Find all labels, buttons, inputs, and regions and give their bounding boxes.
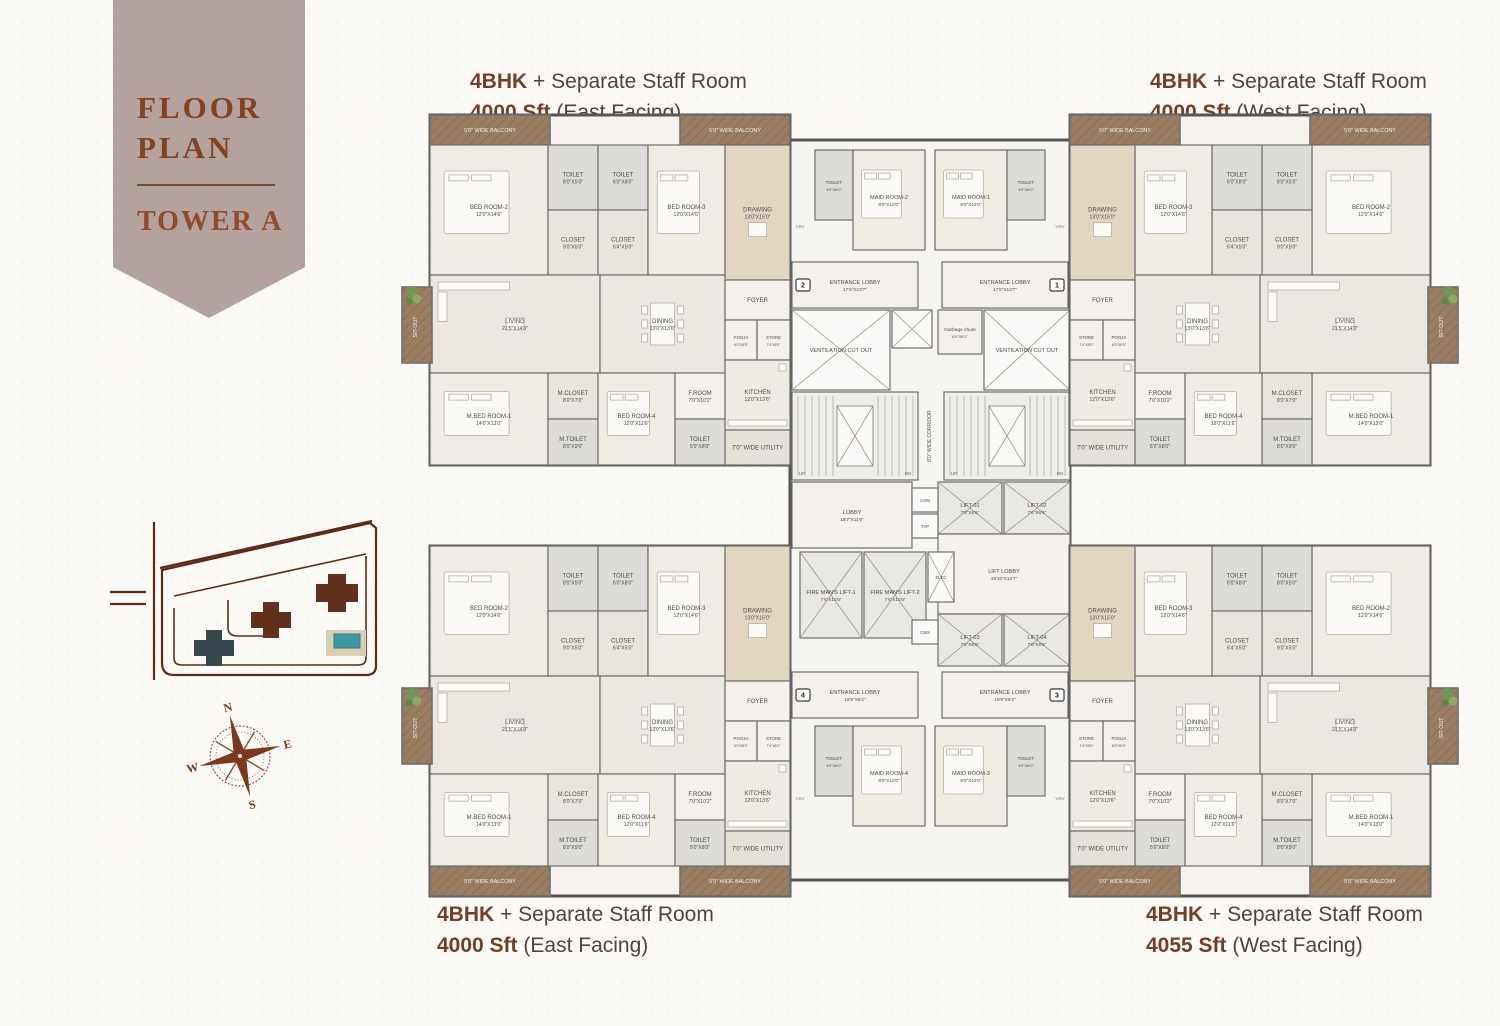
room-tl-m-toilet: M.TOILET8'0"X9'0" bbox=[548, 419, 598, 465]
unit-facing: (East Facing) bbox=[523, 934, 648, 957]
room-bl-balcony-top-b: 5'0" WIDE BALCONY bbox=[680, 866, 790, 896]
svg-text:5'0" WIDE BALCONY: 5'0" WIDE BALCONY bbox=[709, 879, 761, 885]
tower-c-footprint bbox=[316, 574, 358, 612]
svg-text:POOJA: POOJA bbox=[1112, 736, 1127, 741]
svg-text:M.CLOSET: M.CLOSET bbox=[1272, 792, 1303, 798]
svg-text:TOILET: TOILET bbox=[1018, 180, 1035, 186]
svg-text:BED ROOM-2: BED ROOM-2 bbox=[470, 606, 509, 612]
core-room-cws-shaft: CWS bbox=[912, 620, 938, 644]
svg-text:TOILET: TOILET bbox=[613, 172, 634, 178]
unit-desc: + Separate Staff Room bbox=[1213, 70, 1427, 93]
site-map bbox=[98, 508, 398, 698]
svg-text:6'4"X5'0": 6'4"X5'0" bbox=[613, 645, 633, 651]
room-tr-utility: 7'0" WIDE UTILITY bbox=[1070, 430, 1135, 465]
svg-text:5'0" WIDE BALCONY: 5'0" WIDE BALCONY bbox=[1099, 128, 1151, 134]
svg-text:MAID ROOM-3: MAID ROOM-3 bbox=[952, 771, 990, 777]
ribbon-title-line1: FLOOR bbox=[137, 88, 305, 128]
room-bl-drawing: DRAWING13'0"X15'0" bbox=[725, 546, 790, 681]
svg-text:LIFT-03: LIFT-03 bbox=[960, 635, 979, 641]
svg-text:4: 4 bbox=[801, 693, 805, 700]
core-room-lift-04: LIFT-047'6"X6'6" bbox=[1004, 614, 1070, 666]
svg-text:LIVING: LIVING bbox=[505, 720, 525, 726]
svg-text:12'0"X14'6": 12'0"X14'6" bbox=[1161, 613, 1187, 619]
room-tr-foyer: FOYER bbox=[1070, 280, 1135, 320]
core-room-stair-l: UPDN bbox=[792, 392, 918, 480]
svg-text:6'0"X8'0": 6'0"X8'0" bbox=[613, 179, 633, 185]
svg-text:LIFT-02: LIFT-02 bbox=[1027, 503, 1046, 509]
svg-text:18'7"X11'6": 18'7"X11'6" bbox=[840, 517, 864, 522]
room-tr-bed-room-4: BED ROOM-412'0"X11'6" bbox=[1185, 373, 1262, 465]
room-tr-m-bed-room-1: M.BED ROOM-114'0"X13'0" bbox=[1312, 373, 1430, 465]
room-tl-toilet-3: TOILET6'0"X8'0" bbox=[598, 145, 648, 210]
room-bl-balcony-top-a: 5'0" WIDE BALCONY bbox=[430, 866, 550, 896]
svg-text:13'0"X13'6": 13'0"X13'6" bbox=[650, 326, 676, 332]
room-tl-drawing: DRAWING13'0"X15'0" bbox=[725, 145, 790, 280]
svg-text:BED ROOM-4: BED ROOM-4 bbox=[1204, 815, 1243, 821]
svg-text:8'0"X12'0": 8'0"X12'0" bbox=[960, 778, 982, 783]
core-room-elec-shaft: ELEC bbox=[928, 552, 954, 602]
room-tl-bed-room-2: BED ROOM-212'0"X14'6" bbox=[430, 145, 548, 275]
core-room-maid-room-3: MAID ROOM-38'0"X12'0" bbox=[935, 726, 1007, 826]
svg-text:SIT-OUT: SIT-OUT bbox=[1439, 316, 1445, 338]
svg-text:M.TOILET: M.TOILET bbox=[559, 437, 587, 443]
svg-text:FOYER: FOYER bbox=[747, 699, 768, 705]
svg-text:M.BED ROOM-1: M.BED ROOM-1 bbox=[467, 815, 512, 821]
svg-text:8'0"X5'0": 8'0"X5'0" bbox=[1277, 179, 1297, 185]
svg-text:7'0" WIDE UTILITY: 7'0" WIDE UTILITY bbox=[1077, 446, 1128, 452]
svg-text:BED ROOM-4: BED ROOM-4 bbox=[617, 414, 656, 420]
svg-text:CLOSET: CLOSET bbox=[561, 237, 585, 243]
svg-text:14'0"X13'0": 14'0"X13'0" bbox=[1358, 822, 1384, 828]
core-room-tap-shaft: TAP bbox=[912, 514, 938, 538]
svg-text:ELEC: ELEC bbox=[936, 575, 947, 580]
svg-text:SIT-OUT: SIT-OUT bbox=[413, 717, 419, 739]
svg-text:CLOSET: CLOSET bbox=[611, 638, 635, 644]
svg-text:17'6"X13'7": 17'6"X13'7" bbox=[843, 287, 867, 292]
svg-text:12'0"X14'6": 12'0"X14'6" bbox=[476, 613, 502, 619]
svg-text:ENTRANCE LOBBY: ENTRANCE LOBBY bbox=[980, 280, 1031, 286]
compass-north-label: N bbox=[222, 700, 234, 716]
room-br-bed-room-4: BED ROOM-412'0"X11'6" bbox=[1185, 774, 1262, 866]
svg-text:8'0"X12'0": 8'0"X12'0" bbox=[878, 778, 900, 783]
room-tr-closet-3: CLOSET6'4"X5'0" bbox=[1212, 210, 1262, 275]
room-bl-toilet-2: TOILET8'0"X5'0" bbox=[548, 546, 598, 611]
svg-text:DINING: DINING bbox=[1187, 720, 1208, 726]
svg-text:21'5"X14'0": 21'5"X14'0" bbox=[502, 727, 528, 733]
central-core: TOILET4'0"X6'0"MAID ROOM-28'0"X12'0"MAID… bbox=[790, 140, 1070, 880]
svg-text:TOILET: TOILET bbox=[826, 180, 843, 186]
core-room-entrance-lobby-1: ENTRANCE LOBBY17'6"X13'7"1 bbox=[942, 262, 1068, 308]
svg-text:5'0"X8'0": 5'0"X8'0" bbox=[690, 845, 710, 851]
svg-text:M.BED ROOM-1: M.BED ROOM-1 bbox=[1349, 815, 1394, 821]
svg-text:9'0"X5'0": 9'0"X5'0" bbox=[563, 645, 583, 651]
core-room-shaft-a bbox=[892, 310, 932, 348]
unit-area: 4055 Sft bbox=[1146, 934, 1227, 957]
svg-text:VSV: VSV bbox=[1055, 224, 1065, 229]
svg-text:M.TOILET: M.TOILET bbox=[1273, 437, 1301, 443]
svg-text:8'0"X7'0": 8'0"X7'0" bbox=[1277, 799, 1297, 805]
svg-text:4'0"X6'0": 4'0"X6'0" bbox=[826, 187, 842, 192]
unit-area: 4000 Sft bbox=[437, 934, 518, 957]
svg-text:7'6"X6'6": 7'6"X6'6" bbox=[961, 642, 980, 647]
svg-text:12'0"X14'6": 12'0"X14'6" bbox=[1358, 613, 1384, 619]
svg-text:TOILET: TOILET bbox=[826, 756, 843, 762]
room-tr-balcony-top-a: 5'0" WIDE BALCONY bbox=[1310, 115, 1430, 145]
room-tl-store: STORE7'4"X5'0" bbox=[757, 320, 790, 360]
room-br-utility: 7'0" WIDE UTILITY bbox=[1070, 831, 1135, 866]
core-room-maid-toilet-1: TOILET4'0"X6'0" bbox=[1007, 150, 1045, 220]
room-br-bed-room-3: BED ROOM-312'0"X14'6" bbox=[1135, 546, 1212, 676]
svg-text:12'0"X14'6": 12'0"X14'6" bbox=[476, 212, 502, 218]
room-tr-pooja: POOJA6'0"X5'0" bbox=[1103, 320, 1135, 360]
svg-text:TOILET: TOILET bbox=[1150, 437, 1171, 443]
room-bl-living: LIVING21'5"X14'0" bbox=[430, 676, 600, 774]
room-br-toilet-3: TOILET6'0"X8'0" bbox=[1212, 546, 1262, 611]
svg-text:14'0"X13'0": 14'0"X13'0" bbox=[476, 822, 502, 828]
svg-text:VENTILATION CUT OUT: VENTILATION CUT OUT bbox=[996, 348, 1059, 354]
svg-text:8'0"X7'0": 8'0"X7'0" bbox=[563, 398, 583, 404]
svg-text:12'0"X11'6": 12'0"X11'6" bbox=[1211, 822, 1237, 828]
room-br-m-closet: M.CLOSET8'0"X7'0" bbox=[1262, 774, 1312, 820]
unit-facing: (West Facing) bbox=[1232, 934, 1362, 957]
svg-text:8'0"X5'0": 8'0"X5'0" bbox=[1277, 580, 1297, 586]
room-bl-m-toilet: M.TOILET8'0"X9'0" bbox=[548, 820, 598, 866]
room-tl-dining: DINING13'0"X13'6" bbox=[600, 275, 725, 373]
svg-text:19'6"X9'2": 19'6"X9'2" bbox=[994, 697, 1016, 702]
room-tl-bed-room-4: BED ROOM-412'0"X11'6" bbox=[598, 373, 675, 465]
room-bl-closet-2: CLOSET9'0"X5'0" bbox=[548, 611, 598, 676]
svg-text:SIT-OUT: SIT-OUT bbox=[413, 316, 419, 338]
apartment-tr: 5'0" WIDE BALCONY5'0" WIDE BALCONYBED RO… bbox=[1070, 115, 1458, 465]
room-br-store: STORE7'4"X5'0" bbox=[1070, 721, 1103, 761]
svg-text:CLOSET: CLOSET bbox=[561, 638, 585, 644]
room-br-f-room: F.ROOM7'0"X10'2" bbox=[1135, 774, 1185, 820]
room-bl-f-room: F.ROOM7'0"X10'2" bbox=[675, 774, 725, 820]
unit-line1: 4BHK + Separate Staff Room bbox=[470, 66, 747, 97]
svg-text:TOILET: TOILET bbox=[1277, 573, 1298, 579]
compass-rose: N E S W bbox=[184, 698, 296, 814]
ribbon-title-line2: PLAN bbox=[137, 128, 305, 168]
core-room-lift-01: LIFT-017'6"X6'6" bbox=[938, 482, 1002, 534]
svg-text:7'0" WIDE UTILITY: 7'0" WIDE UTILITY bbox=[1077, 847, 1128, 853]
svg-text:F.ROOM: F.ROOM bbox=[688, 792, 711, 798]
room-br-toilet-4: TOILET5'0"X8'0" bbox=[1135, 820, 1185, 866]
svg-text:CLOSET: CLOSET bbox=[611, 237, 635, 243]
svg-text:TOILET: TOILET bbox=[1150, 838, 1171, 844]
room-tl-m-closet: M.CLOSET8'0"X7'0" bbox=[548, 373, 598, 419]
ribbon-subtitle: TOWER A bbox=[137, 206, 305, 238]
compass-south-label: S bbox=[247, 797, 257, 812]
svg-text:7'4"X5'0": 7'4"X5'0" bbox=[767, 744, 782, 748]
core-room-vent-l: VENTILATION CUT OUT bbox=[792, 310, 890, 390]
svg-text:6'0"X5'0": 6'0"X5'0" bbox=[734, 343, 749, 347]
room-br-balcony-top-a: 5'0" WIDE BALCONY bbox=[1310, 866, 1430, 896]
svg-text:BED ROOM-2: BED ROOM-2 bbox=[1352, 606, 1391, 612]
svg-text:CLOSET: CLOSET bbox=[1225, 237, 1249, 243]
room-bl-kitchen: KITCHEN12'0"X13'6" bbox=[725, 761, 790, 831]
ribbon-divider bbox=[137, 184, 275, 186]
svg-text:BED ROOM-3: BED ROOM-3 bbox=[667, 205, 706, 211]
svg-text:7'0"X10'2": 7'0"X10'2" bbox=[688, 398, 711, 404]
room-tl-utility: 7'0" WIDE UTILITY bbox=[725, 430, 790, 465]
svg-text:M.BED ROOM-1: M.BED ROOM-1 bbox=[1349, 414, 1394, 420]
apartment-bl: 5'0" WIDE BALCONY5'0" WIDE BALCONYBED RO… bbox=[402, 546, 790, 896]
svg-text:SIT-OUT: SIT-OUT bbox=[1439, 717, 1445, 739]
svg-text:LIVING: LIVING bbox=[1335, 319, 1355, 325]
room-br-pooja: POOJA6'0"X5'0" bbox=[1103, 721, 1135, 761]
room-bl-store: STORE7'4"X5'0" bbox=[757, 721, 790, 761]
room-bl-toilet-3: TOILET6'0"X8'0" bbox=[598, 546, 648, 611]
svg-text:UP: UP bbox=[799, 471, 805, 476]
apartment-tl: 5'0" WIDE BALCONY5'0" WIDE BALCONYBED RO… bbox=[402, 115, 790, 465]
svg-text:LIFT-04: LIFT-04 bbox=[1027, 635, 1046, 641]
svg-text:7'0" WIDE UTILITY: 7'0" WIDE UTILITY bbox=[732, 847, 783, 853]
room-br-closet-3: CLOSET6'4"X5'0" bbox=[1212, 611, 1262, 676]
svg-text:TOILET: TOILET bbox=[690, 437, 711, 443]
room-tl-closet-3: CLOSET6'4"X5'0" bbox=[598, 210, 648, 275]
svg-text:DINING: DINING bbox=[1187, 319, 1208, 325]
svg-text:12'0"X13'6": 12'0"X13'6" bbox=[745, 798, 771, 804]
room-tr-living: LIVING21'5"X14'0" bbox=[1260, 275, 1430, 373]
svg-text:BED ROOM-3: BED ROOM-3 bbox=[1154, 205, 1193, 211]
unit-line1: 4BHK + Separate Staff Room bbox=[1150, 66, 1427, 97]
svg-text:POOJA: POOJA bbox=[734, 736, 749, 741]
room-bl-bed-room-4: BED ROOM-412'0"X11'6" bbox=[598, 774, 675, 866]
core-room-maid-toilet-4: TOILET4'0"X6'0" bbox=[815, 726, 853, 796]
svg-text:7'6"X11'6": 7'6"X11'6" bbox=[821, 597, 842, 602]
room-tr-balcony-top-b: 5'0" WIDE BALCONY bbox=[1070, 115, 1180, 145]
svg-text:12'0"X11'6": 12'0"X11'6" bbox=[1211, 421, 1237, 427]
svg-text:5'0"X8'0": 5'0"X8'0" bbox=[1150, 444, 1170, 450]
title-ribbon: FLOOR PLAN TOWER A bbox=[113, 0, 305, 318]
svg-text:UP: UP bbox=[951, 471, 957, 476]
svg-text:8'0"X5'0": 8'0"X5'0" bbox=[563, 179, 583, 185]
svg-text:3: 3 bbox=[1055, 693, 1059, 700]
svg-text:COM: COM bbox=[920, 498, 930, 503]
svg-text:5'0" WIDE BALCONY: 5'0" WIDE BALCONY bbox=[1344, 128, 1396, 134]
core-room-maid-room-4: MAID ROOM-48'0"X12'0" bbox=[853, 726, 925, 826]
room-tl-bed-room-3: BED ROOM-312'0"X14'6" bbox=[648, 145, 725, 275]
svg-text:DRAWING: DRAWING bbox=[1088, 608, 1117, 614]
svg-text:12'0"X13'6": 12'0"X13'6" bbox=[745, 397, 771, 403]
svg-text:6'0"X6'1": 6'0"X6'1" bbox=[952, 334, 968, 339]
room-br-m-toilet: M.TOILET8'0"X9'0" bbox=[1262, 820, 1312, 866]
room-br-foyer: FOYER bbox=[1070, 681, 1135, 721]
room-tl-living: LIVING21'5"X14'0" bbox=[430, 275, 600, 373]
svg-text:6'4"X5'0": 6'4"X5'0" bbox=[613, 244, 633, 250]
svg-text:FOYER: FOYER bbox=[747, 298, 768, 304]
svg-text:KITCHEN: KITCHEN bbox=[1089, 390, 1115, 396]
floor-plan-drawing: TOILET4'0"X6'0"MAID ROOM-28'0"X12'0"MAID… bbox=[400, 100, 1460, 910]
svg-text:5'0" WIDE BALCONY: 5'0" WIDE BALCONY bbox=[464, 879, 516, 885]
svg-text:8'0"X5'0": 8'0"X5'0" bbox=[563, 580, 583, 586]
svg-text:VSV: VSV bbox=[1055, 796, 1065, 801]
svg-text:M.CLOSET: M.CLOSET bbox=[1272, 391, 1303, 397]
svg-text:MAID ROOM-1: MAID ROOM-1 bbox=[952, 195, 990, 201]
svg-text:12'0"X14'6": 12'0"X14'6" bbox=[674, 613, 700, 619]
svg-text:CLOSET: CLOSET bbox=[1275, 638, 1299, 644]
room-bl-m-bed-room-1: M.BED ROOM-114'0"X13'0" bbox=[430, 774, 548, 866]
svg-text:8'0"X9'0": 8'0"X9'0" bbox=[1277, 444, 1297, 450]
svg-text:8'0"X12'0": 8'0"X12'0" bbox=[960, 202, 982, 207]
svg-text:TOILET: TOILET bbox=[1227, 573, 1248, 579]
svg-text:M.CLOSET: M.CLOSET bbox=[558, 792, 589, 798]
svg-text:BED ROOM-4: BED ROOM-4 bbox=[617, 815, 656, 821]
svg-text:STORE: STORE bbox=[766, 335, 781, 340]
svg-text:19'6"X9'2": 19'6"X9'2" bbox=[844, 697, 866, 702]
svg-text:LIVING: LIVING bbox=[505, 319, 525, 325]
svg-text:13'0"X15'0": 13'0"X15'0" bbox=[745, 615, 771, 621]
core-room-lobby: LOBBY18'7"X11'6" bbox=[792, 482, 912, 548]
unit-desc: + Separate Staff Room bbox=[533, 70, 747, 93]
room-tr-m-closet: M.CLOSET8'0"X7'0" bbox=[1262, 373, 1312, 419]
room-bl-bed-room-3: BED ROOM-312'0"X14'6" bbox=[648, 546, 725, 676]
svg-text:DN: DN bbox=[1057, 471, 1064, 476]
svg-text:4'0"X6'0": 4'0"X6'0" bbox=[1018, 187, 1034, 192]
svg-text:TOILET: TOILET bbox=[1277, 172, 1298, 178]
svg-text:6'0"X8'0": 6'0"X8'0" bbox=[1227, 580, 1247, 586]
svg-text:TOILET: TOILET bbox=[690, 838, 711, 844]
svg-text:CWS: CWS bbox=[920, 630, 930, 635]
svg-text:KITCHEN: KITCHEN bbox=[744, 390, 770, 396]
svg-text:6'4"X5'0": 6'4"X5'0" bbox=[1227, 244, 1247, 250]
svg-text:13'0"X13'6": 13'0"X13'6" bbox=[1185, 727, 1211, 733]
svg-text:7'4"X5'0": 7'4"X5'0" bbox=[767, 343, 782, 347]
svg-text:7'4"X5'0": 7'4"X5'0" bbox=[1080, 744, 1095, 748]
room-br-kitchen: KITCHEN12'0"X13'6" bbox=[1070, 761, 1135, 831]
core-room-entrance-lobby-2: ENTRANCE LOBBY17'6"X13'7"2 bbox=[792, 262, 918, 308]
room-bl-pooja: POOJA6'0"X5'0" bbox=[725, 721, 757, 761]
svg-text:POOJA: POOJA bbox=[1112, 335, 1127, 340]
svg-text:12'0"X14'6": 12'0"X14'6" bbox=[1161, 212, 1187, 218]
svg-text:12'0"X14'6": 12'0"X14'6" bbox=[1358, 212, 1384, 218]
unit-type: 4BHK bbox=[1150, 70, 1207, 93]
svg-text:POOJA: POOJA bbox=[734, 335, 749, 340]
svg-text:STORE: STORE bbox=[766, 736, 781, 741]
svg-text:BED ROOM-3: BED ROOM-3 bbox=[1154, 606, 1193, 612]
svg-text:LOBBY: LOBBY bbox=[843, 510, 862, 516]
core-room-fire-mans-lift-1: FIRE MAN'S LIFT-17'6"X11'6" bbox=[800, 552, 862, 638]
svg-text:8'0"X7'0": 8'0"X7'0" bbox=[563, 799, 583, 805]
svg-text:9'0"X5'0": 9'0"X5'0" bbox=[1277, 645, 1297, 651]
svg-text:19'10"X12'7": 19'10"X12'7" bbox=[991, 576, 1018, 581]
svg-text:DINING: DINING bbox=[652, 720, 673, 726]
svg-text:MAID ROOM-4: MAID ROOM-4 bbox=[870, 771, 908, 777]
svg-text:M.TOILET: M.TOILET bbox=[559, 838, 587, 844]
room-tr-closet-2: CLOSET9'0"X5'0" bbox=[1262, 210, 1312, 275]
svg-text:CLOSET: CLOSET bbox=[1275, 237, 1299, 243]
svg-text:ENTRANCE LOBBY: ENTRANCE LOBBY bbox=[830, 690, 881, 696]
room-tl-f-room: F.ROOM7'0"X10'2" bbox=[675, 373, 725, 419]
core-room-stair-r: UPDN bbox=[944, 392, 1070, 480]
svg-text:7'6"X6'6": 7'6"X6'6" bbox=[961, 510, 980, 515]
svg-text:FIRE MAN'S LIFT-2: FIRE MAN'S LIFT-2 bbox=[870, 590, 919, 596]
svg-text:13'0"X15'0": 13'0"X15'0" bbox=[745, 214, 771, 220]
svg-text:TAP: TAP bbox=[921, 524, 929, 529]
room-tr-store: STORE7'4"X5'0" bbox=[1070, 320, 1103, 360]
svg-text:1: 1 bbox=[1055, 283, 1059, 290]
svg-text:8'0"X9'0": 8'0"X9'0" bbox=[563, 444, 583, 450]
svg-text:STORE: STORE bbox=[1079, 335, 1094, 340]
svg-text:CLOSET: CLOSET bbox=[1225, 638, 1249, 644]
svg-text:LIVING: LIVING bbox=[1335, 720, 1355, 726]
svg-text:FOYER: FOYER bbox=[1092, 699, 1113, 705]
svg-text:7'0"X10'2": 7'0"X10'2" bbox=[1148, 799, 1171, 805]
svg-text:8'0"X12'0": 8'0"X12'0" bbox=[878, 202, 900, 207]
svg-text:ENTRANCE LOBBY: ENTRANCE LOBBY bbox=[980, 690, 1031, 696]
svg-text:5'0"X8'0": 5'0"X8'0" bbox=[1150, 845, 1170, 851]
room-br-drawing: DRAWING13'0"X15'0" bbox=[1070, 546, 1135, 681]
svg-text:6'0"X8'0": 6'0"X8'0" bbox=[1227, 179, 1247, 185]
svg-text:13'0"X13'6": 13'0"X13'6" bbox=[1185, 326, 1211, 332]
svg-text:F.ROOM: F.ROOM bbox=[1148, 391, 1171, 397]
room-br-closet-2: CLOSET9'0"X5'0" bbox=[1262, 611, 1312, 676]
svg-text:DRAWING: DRAWING bbox=[1088, 207, 1117, 213]
svg-text:8'0" WIDE CORRIDOR: 8'0" WIDE CORRIDOR bbox=[927, 410, 933, 462]
svg-text:BED ROOM-4: BED ROOM-4 bbox=[1204, 414, 1243, 420]
svg-text:4'0"X6'0": 4'0"X6'0" bbox=[826, 763, 842, 768]
svg-text:DRAWING: DRAWING bbox=[743, 608, 772, 614]
svg-text:9'0"X5'0": 9'0"X5'0" bbox=[1277, 244, 1297, 250]
core-room-garbage-chute: Garbage chute6'0"X6'1" bbox=[938, 310, 982, 354]
room-tr-toilet-2: TOILET8'0"X5'0" bbox=[1262, 145, 1312, 210]
unit-type: 4BHK bbox=[470, 70, 527, 93]
svg-text:TOILET: TOILET bbox=[1227, 172, 1248, 178]
unit-line2: 4055 Sft (West Facing) bbox=[1146, 930, 1423, 961]
svg-text:7'0"X10'2": 7'0"X10'2" bbox=[688, 799, 711, 805]
compass-west-label: W bbox=[185, 760, 200, 776]
room-tl-closet-2: CLOSET9'0"X5'0" bbox=[548, 210, 598, 275]
svg-text:9'0"X5'0": 9'0"X5'0" bbox=[563, 244, 583, 250]
svg-text:5'0" WIDE BALCONY: 5'0" WIDE BALCONY bbox=[709, 128, 761, 134]
room-bl-foyer: FOYER bbox=[725, 681, 790, 721]
room-bl-closet-3: CLOSET6'4"X5'0" bbox=[598, 611, 648, 676]
room-tl-pooja: POOJA6'0"X5'0" bbox=[725, 320, 757, 360]
svg-text:6'0"X5'0": 6'0"X5'0" bbox=[734, 744, 749, 748]
svg-text:VENTILATION CUT OUT: VENTILATION CUT OUT bbox=[810, 348, 873, 354]
svg-text:LIFT LOBBY: LIFT LOBBY bbox=[988, 569, 1020, 575]
svg-text:5'0"X8'0": 5'0"X8'0" bbox=[690, 444, 710, 450]
svg-text:5'0" WIDE BALCONY: 5'0" WIDE BALCONY bbox=[1099, 879, 1151, 885]
svg-text:BED ROOM-2: BED ROOM-2 bbox=[470, 205, 509, 211]
svg-text:TOILET: TOILET bbox=[613, 573, 634, 579]
svg-text:6'0"X5'0": 6'0"X5'0" bbox=[1112, 343, 1127, 347]
svg-text:FOYER: FOYER bbox=[1092, 298, 1113, 304]
svg-text:7'6"X6'6": 7'6"X6'6" bbox=[1028, 642, 1047, 647]
svg-text:5'0" WIDE BALCONY: 5'0" WIDE BALCONY bbox=[464, 128, 516, 134]
svg-text:2: 2 bbox=[801, 283, 805, 290]
svg-text:12'0"X13'6": 12'0"X13'6" bbox=[1090, 798, 1116, 804]
room-tl-toilet-2: TOILET8'0"X5'0" bbox=[548, 145, 598, 210]
room-tr-m-toilet: M.TOILET8'0"X9'0" bbox=[1262, 419, 1312, 465]
svg-text:6'4"X5'0": 6'4"X5'0" bbox=[1227, 645, 1247, 651]
road-diagonal bbox=[160, 521, 372, 568]
svg-text:21'5"X14'0": 21'5"X14'0" bbox=[1332, 727, 1358, 733]
svg-text:F.ROOM: F.ROOM bbox=[1148, 792, 1171, 798]
core-room-com-shaft: COM bbox=[912, 488, 938, 512]
room-bl-m-closet: M.CLOSET8'0"X7'0" bbox=[548, 774, 598, 820]
svg-text:KITCHEN: KITCHEN bbox=[744, 791, 770, 797]
svg-text:7'0"X10'2": 7'0"X10'2" bbox=[1148, 398, 1171, 404]
floor-plan-page: FLOOR PLAN TOWER A 4BHK + Separate Staff… bbox=[0, 0, 1500, 1026]
plan-root: TOILET4'0"X6'0"MAID ROOM-28'0"X12'0"MAID… bbox=[402, 115, 1458, 896]
svg-text:STORE: STORE bbox=[1079, 736, 1094, 741]
svg-text:14'0"X13'0": 14'0"X13'0" bbox=[1358, 421, 1384, 427]
core-room-vent-r: VENTILATION CUT OUT bbox=[984, 310, 1070, 390]
svg-text:5'0" WIDE BALCONY: 5'0" WIDE BALCONY bbox=[1344, 879, 1396, 885]
svg-text:7'4"X5'0": 7'4"X5'0" bbox=[1080, 343, 1095, 347]
svg-text:M.CLOSET: M.CLOSET bbox=[558, 391, 589, 397]
